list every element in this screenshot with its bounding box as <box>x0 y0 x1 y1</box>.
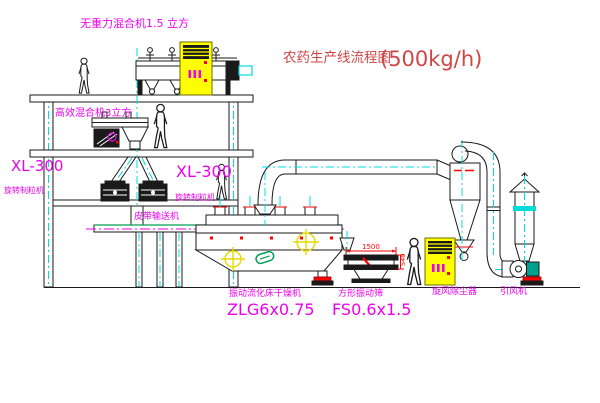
label-granulator-left-model: XL-300 <box>11 157 63 175</box>
label-fan: 引风机 <box>500 285 527 297</box>
cyclone-cone <box>450 200 480 240</box>
label-sieve-name: 方形振动筛 <box>338 287 383 299</box>
splitter-chute <box>111 157 158 182</box>
indicator-lamp-icon <box>204 61 207 64</box>
induced-draft-fan <box>502 261 543 286</box>
diagram-title-capacity: (500kg/h) <box>380 47 482 71</box>
dim-text-1500: 1500 <box>362 243 380 251</box>
label-high-efficiency-mixer: 高效混合机3立方 <box>55 106 131 119</box>
control-cabinet-dedusting <box>425 238 455 285</box>
cad-canvas: 无重力混合机1.5 立方 农药生产线流程图 (500kg/h) 高效混合机3立方… <box>0 0 600 403</box>
label-sieve-model: FS0.6x1.5 <box>332 300 411 319</box>
vibrating-sieve <box>344 247 404 283</box>
indicator-lamp-icon <box>447 256 450 259</box>
process-flow-diagram: 无重力混合机1.5 立方 农药生产线流程图 (500kg/h) 高效混合机3立方… <box>0 0 600 403</box>
granulator-right <box>139 181 167 201</box>
support-legs <box>136 232 182 287</box>
label-cyclone: 旋风除尘器 <box>432 285 477 297</box>
person-figure <box>154 104 167 147</box>
label-gravity-free-mixer: 无重力混合机1.5 立方 <box>80 16 189 30</box>
cabinet-readout-icon <box>189 70 202 78</box>
duct-reducer <box>437 160 451 180</box>
label-granulator-left-name: 旋转制粒机 <box>4 185 44 195</box>
control-cabinet-top <box>180 42 212 95</box>
mixer-leg <box>138 80 142 95</box>
cabinet-readout-icon <box>432 264 445 272</box>
label-dryer-name: 振动流化床干燥机 <box>229 287 301 299</box>
mixer-end-port <box>239 66 252 75</box>
dim-text-540: 540 <box>399 254 407 266</box>
fan-motor <box>527 262 540 276</box>
cyclone-outlet-dome <box>452 146 468 162</box>
indicator-lamp-icon <box>447 272 450 275</box>
dryer-foot <box>312 271 333 285</box>
mixer-leg <box>226 80 230 95</box>
diagram-title: 农药生产线流程图 <box>283 50 391 66</box>
person-figure <box>407 238 420 284</box>
label-granulator-right-model: XL-300 <box>176 162 232 181</box>
person-figure <box>79 58 89 93</box>
floor-slab-top <box>30 95 253 102</box>
indicator-lamp-icon <box>204 79 207 82</box>
label-granulator-right-name: 旋转制粒机 <box>175 192 215 202</box>
fan-base <box>523 277 541 281</box>
label-belt-conveyor: 皮带输送机 <box>134 210 179 222</box>
granulator-left <box>101 181 129 201</box>
rotary-discharge <box>460 253 468 261</box>
label-dryer-model: ZLG6x0.75 <box>227 300 315 319</box>
floor-slab-mid <box>30 150 253 157</box>
